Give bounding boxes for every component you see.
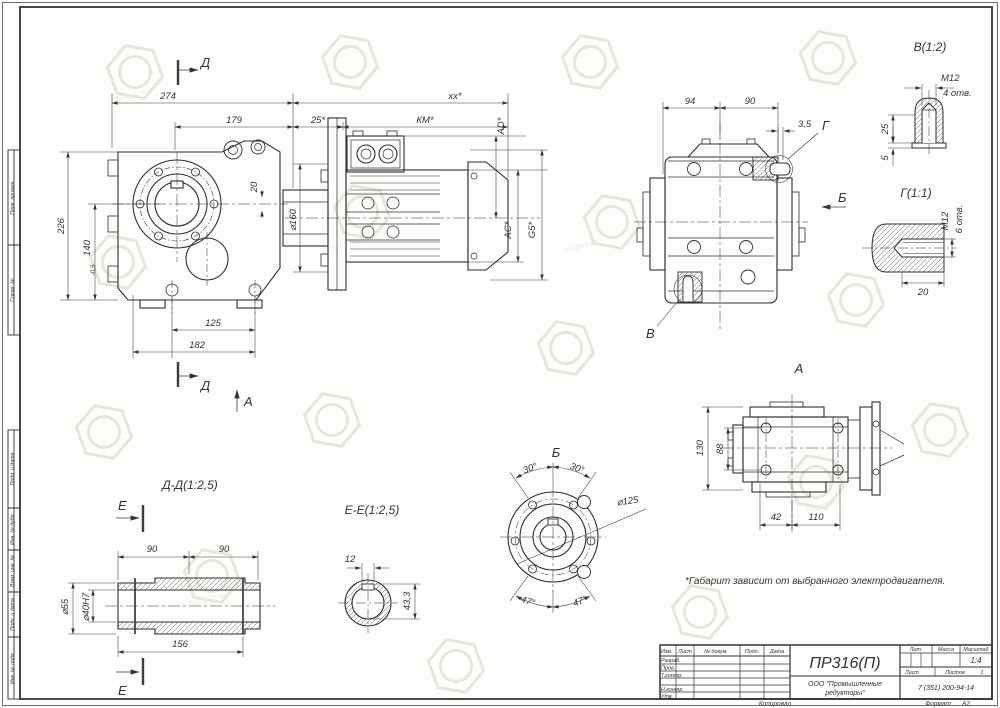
tb-row-utv: Утв. (660, 694, 673, 700)
tb-row-prov: Пров. (661, 666, 675, 672)
detail-g-thread: M12 (940, 211, 951, 230)
tb-org-line2: редукторы" (824, 689, 865, 697)
detail-g-dim-20: 20 (917, 287, 929, 298)
tb-listov-label: Листов (944, 670, 965, 676)
section-ee-title: Е-Е(1:2,5) (345, 503, 400, 517)
detail-v-dim-25: 25 (880, 123, 891, 135)
tb-doc-number: ПР316(П) (809, 655, 880, 672)
detail-mark-g: Г (822, 118, 830, 133)
dim-g5: G5* (527, 222, 538, 239)
dim-km: КМ* (416, 115, 434, 126)
section-dd-title: Д-Д(1:2,5) (160, 478, 218, 492)
dd-dim-90b: 90 (219, 544, 230, 555)
sheet-frame (3, 3, 998, 706)
dim-3-5: 3,5 (798, 119, 812, 130)
stamp-label: Взам. инв. № (10, 555, 16, 587)
stamp-label: Инв. № подл. (10, 652, 16, 684)
dim-130: 130 (695, 439, 706, 456)
detail-v-geometry (912, 90, 946, 156)
section-mark-d-top: Д (199, 55, 210, 70)
tb-col-data: Дата (769, 649, 784, 655)
dim-182: 182 (189, 340, 206, 351)
section-dd-geometry (105, 578, 275, 634)
tb-col-list: Лист (677, 649, 692, 655)
dim-110: 110 (808, 512, 824, 523)
stamp-label: Справ. № (10, 278, 16, 302)
side-view-geometry (634, 122, 818, 330)
dd-dim-156: 156 (172, 639, 189, 650)
tb-phone: 7 (351) 200-94-14 (918, 685, 974, 692)
tb-kopiroval: Копировал (759, 701, 792, 708)
tb-row-razrab: Разраб. (661, 658, 681, 664)
stamp-label: Подп. и дата (10, 598, 16, 631)
dim-25: 25* (310, 115, 326, 126)
watermark-text: РЕДУКТОРЫ (329, 237, 367, 252)
tb-list-label: Лист (904, 670, 919, 676)
dim-94: 94 (685, 96, 696, 107)
dim-160: ⌀160 (288, 209, 299, 231)
detail-v-dim-5: 5 (880, 155, 891, 161)
view-b-labels: Б 30° 30° 47° 47° ⌀125 (519, 445, 640, 609)
tb-format-value: А2 (961, 701, 970, 708)
front-view-labels: Д Д А 274 xx* 179 25* КМ* 226 140 -0,5 2… (56, 55, 538, 409)
dim-125: 125 (205, 318, 222, 329)
dim-xx: xx* (447, 91, 462, 102)
detail-v-holes: 4 отв. (943, 88, 972, 99)
stamp-label: Подп. и дата (10, 453, 16, 486)
tb-col-ndoc: № докум. (704, 649, 728, 655)
tb-lit-label: Лит. (909, 647, 923, 653)
dd-dim-90a: 90 (147, 544, 158, 555)
vb-angle-47-left: 47° (519, 594, 536, 609)
view-a-title: А (794, 361, 804, 376)
section-ee-geometry (338, 573, 398, 633)
front-view-dimensions (60, 60, 548, 412)
tb-col-podp: Подп. (745, 649, 759, 655)
detail-v-title: В(1:2) (914, 40, 947, 54)
vb-angle-30-right: 30° (568, 461, 585, 476)
vb-angle-47-right: 47° (572, 594, 589, 609)
dim-88: 88 (715, 443, 726, 454)
cut-mark-e-bottom: Е (118, 683, 127, 698)
margin-stamp-labels: Перв. примен. Справ. № Подп. и дата Инв.… (10, 180, 16, 684)
dim-140: 140 (82, 239, 93, 256)
dd-dim-55: ⌀55 (60, 598, 71, 615)
ee-dim-12: 12 (345, 554, 356, 565)
tb-scale-value: 1:4 (970, 656, 982, 665)
view-b-geometry (500, 485, 606, 592)
dim-179: 179 (226, 115, 243, 126)
tb-massa-label: Масса (938, 647, 954, 653)
view-mark-b: Б (838, 190, 847, 205)
dim-ad: AD* (496, 117, 507, 135)
stamp-label: Перв. примен. (10, 180, 16, 214)
front-view-geometry (108, 118, 540, 314)
tb-org-line1: ООО "Промышленные (808, 681, 882, 688)
watermark-text: РЕДУКТОРЫ (565, 239, 603, 254)
dim-ac: AC* (503, 221, 514, 239)
dim-42: 42 (771, 512, 782, 523)
dim-20: 20 (249, 181, 260, 193)
tb-masshtab-label: Масштаб (963, 647, 989, 653)
view-b-dimensions (510, 463, 646, 613)
stamp-label: Инв. № дубл. (10, 513, 16, 545)
dim-90: 90 (745, 96, 756, 107)
dd-dim-40h7: ⌀40H7 (81, 592, 92, 621)
tb-row-nkontr: Н.контр. (661, 687, 684, 693)
cut-mark-e-top: Е (118, 498, 127, 513)
view-b-title: Б (552, 445, 561, 460)
dim-140-tolerance: -0,5 (90, 264, 97, 276)
detail-g-title: Г(1:1) (900, 186, 931, 200)
tb-format-label: Формат (925, 701, 951, 708)
detail-v-thread: M12 (941, 73, 960, 84)
dim-274: 274 (159, 91, 176, 102)
dim-226: 226 (56, 217, 67, 235)
detail-mark-v: В (646, 326, 655, 341)
drawing-sheet: РЕДУКТОРЫ РЕДУКТОРЫ РЕДУКТОРЫ РЕДУКТОРЫ … (0, 0, 1000, 708)
section-mark-d-bottom: Д (199, 378, 210, 393)
detail-g-holes: 6 отв. (954, 205, 965, 234)
side-view-labels: 94 90 3,5 Г Б В (646, 96, 847, 341)
ee-dim-43-3: 43,3 (402, 591, 413, 610)
drawing-canvas: РЕДУКТОРЫ РЕДУКТОРЫ РЕДУКТОРЫ РЕДУКТОРЫ … (0, 0, 1000, 708)
footnote: *Габарит зависит от выбранного электродв… (685, 575, 945, 587)
vb-dim-125: ⌀125 (616, 494, 640, 508)
tb-listov-value: 1 (981, 670, 984, 676)
tb-col-izm: Изм. (661, 649, 673, 655)
view-a-labels: А 130 88 42 110 (695, 361, 824, 523)
view-arrow-a: А (243, 394, 253, 409)
tb-row-tkontr: Т.контр. (661, 673, 683, 679)
watermark-logos: РЕДУКТОРЫ РЕДУКТОРЫ РЕДУКТОРЫ РЕДУКТОРЫ … (76, 32, 967, 693)
vb-angle-30-left: 30° (522, 461, 539, 476)
